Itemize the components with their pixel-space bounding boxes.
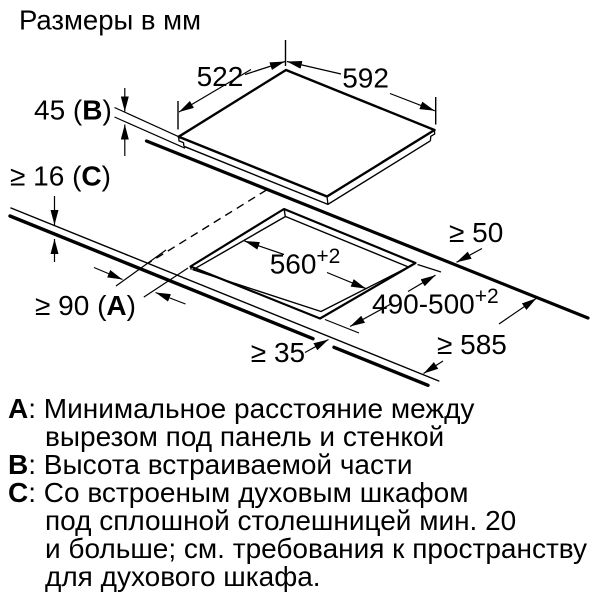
svg-text:490-500+2: 490-500+2 [372,285,499,320]
svg-text:B: Высота встраиваемой части: B: Высота встраиваемой части [8,449,412,480]
svg-text:≥ 35: ≥ 35 [251,337,305,368]
svg-text:592: 592 [342,63,389,94]
svg-text:≥ 585: ≥ 585 [437,329,507,360]
svg-text:под сплошной столешницей мин.: под сплошной столешницей мин. 20 [45,505,516,536]
svg-text:Размеры в мм: Размеры в мм [19,5,201,36]
svg-text:для духового шкафа.: для духового шкафа. [45,561,321,592]
svg-text:45 (B): 45 (B) [34,95,112,126]
svg-text:≥ 50: ≥ 50 [449,217,503,248]
svg-text:≥ 16 (C): ≥ 16 (C) [10,161,111,192]
svg-text:522: 522 [197,61,244,92]
svg-text:560+2: 560+2 [270,245,341,280]
svg-text:C: Со встроеным духовым шкафом: C: Со встроеным духовым шкафом [8,477,468,508]
svg-text:и больше; см. требования к про: и больше; см. требования к пространству [45,533,587,564]
svg-text:A: Минимальное расстояние межд: A: Минимальное расстояние между [8,393,474,424]
svg-text:≥ 90 (A): ≥ 90 (A) [35,290,136,321]
svg-text:вырезом под панель и стенкой: вырезом под панель и стенкой [45,421,444,452]
